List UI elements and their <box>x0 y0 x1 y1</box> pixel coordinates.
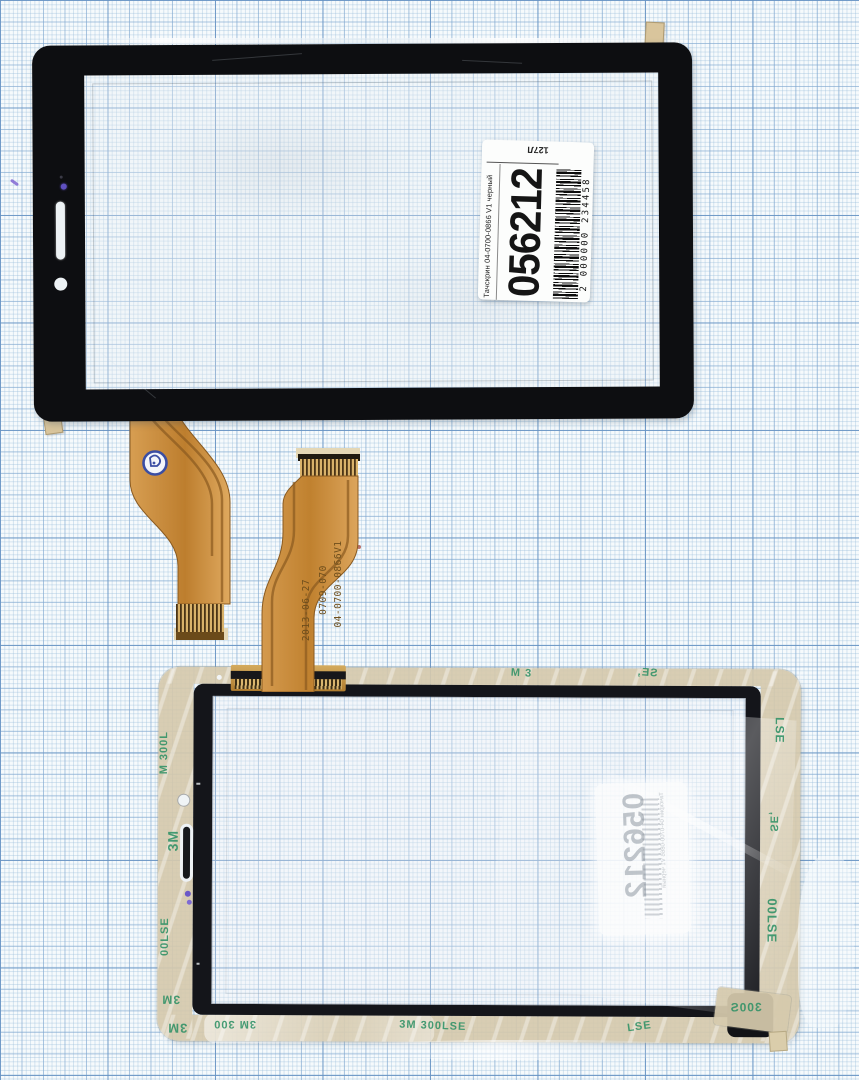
film-edge-right <box>798 856 854 1028</box>
camera-hole-back <box>177 794 190 807</box>
tape-print: SE, <box>767 811 779 832</box>
speaker-slot-back <box>180 824 193 882</box>
camera-hole <box>54 278 67 291</box>
touchscreen-back-view: 056212 Тачскрин 04-0700-0866 V1 черный 3… <box>149 663 803 1054</box>
barcode-label-back-mirrored: 056212 Тачскрин 04-0700-0866 V1 черный <box>595 781 692 936</box>
tape-print: 00LSE <box>765 898 780 943</box>
tape-print: 3M 300LSE <box>399 1019 467 1034</box>
connector-tip <box>176 632 224 640</box>
touchscreen-front-view <box>32 42 694 421</box>
qc-stamp-icon <box>144 452 167 475</box>
proximity-dot <box>61 184 67 190</box>
speaker-slot <box>56 202 65 260</box>
label-corner-mark: 127Л <box>510 144 566 156</box>
tape-print: 3M 300 <box>213 1018 256 1030</box>
barcode <box>553 169 582 300</box>
tape-print: M 3 <box>510 667 532 680</box>
barcode-label: 127Л Тачскрин 04-0700-0866 V1 черный 056… <box>478 139 594 302</box>
tape-print-3m: 3M <box>167 1021 187 1036</box>
alignment-dot <box>217 675 222 680</box>
proximity-dot-small <box>60 176 63 179</box>
paint-speck <box>196 783 200 785</box>
sensor-dot <box>185 891 191 897</box>
connector-fingers <box>176 604 224 632</box>
flex-cable-left <box>116 406 240 644</box>
connector-fingers <box>300 459 358 478</box>
label-stock-number: 056212 <box>496 167 556 299</box>
tape-print: LSE <box>773 717 787 743</box>
flex-cable-right: 04-0700-0866V1 0709-070 2013-06-27 <box>250 446 366 692</box>
tape-print: 00LSE <box>159 917 171 956</box>
pen-mark <box>10 179 19 187</box>
tape-print-300s: 300S <box>730 1000 762 1014</box>
tape-tab-bottom-right <box>769 1031 788 1052</box>
tape-print-3m: 3M <box>165 830 181 852</box>
flex-date: 2013-06-27 <box>301 579 312 641</box>
paint-speck <box>197 963 200 965</box>
tape-print: SE, <box>636 666 658 680</box>
tape-print: 3M <box>161 993 180 1007</box>
product-photo-on-graph-paper: 056212 Тачскрин 04-0700-0866 V1 черный 3… <box>0 0 859 1080</box>
flex-batch: 0709-070 <box>318 565 329 615</box>
tape-print: M 300L <box>158 731 170 774</box>
flex-part-number: 04-0700-0866V1 <box>333 540 344 627</box>
sensor-dot <box>187 900 192 905</box>
